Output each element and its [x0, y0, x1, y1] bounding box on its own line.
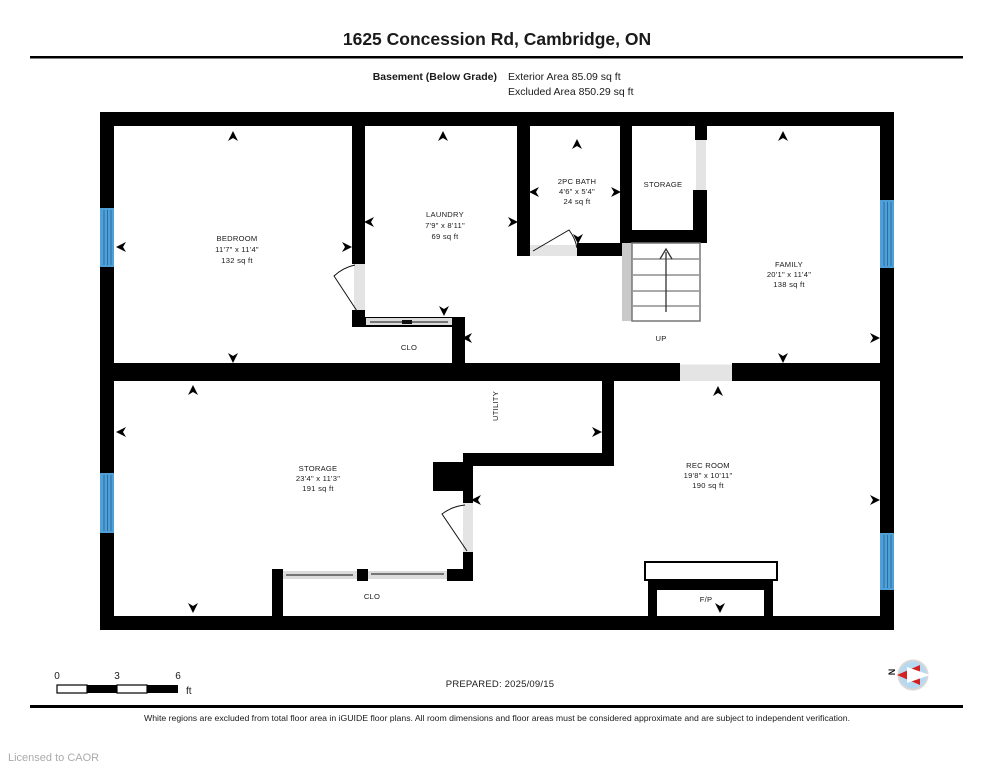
window: [880, 200, 894, 268]
window: [880, 533, 894, 590]
excluded-area-label: Excluded Area 850.29 sq ft: [508, 86, 634, 98]
room-dims-family: 20'1" x 11'4": [767, 270, 811, 279]
room-label-storage-bottom: STORAGE: [299, 464, 338, 473]
measurement-arrow: [364, 217, 374, 227]
footer-disclaimer: White regions are excluded from total fl…: [144, 713, 850, 723]
measurement-arrow: [188, 603, 198, 613]
measurement-arrow: [438, 131, 448, 141]
exterior-area-label: Exterior Area 85.09 sq ft: [508, 71, 621, 83]
measurement-arrow: [713, 386, 723, 396]
measurement-arrow: [778, 353, 788, 363]
license-label: Licensed to CAOR: [8, 752, 99, 764]
measurement-arrow: [611, 187, 621, 197]
closet-top-label: CLO: [401, 343, 417, 352]
wall: [452, 317, 465, 367]
wall: [463, 466, 473, 503]
measurement-arrow: [228, 131, 238, 141]
scale-segment: [117, 685, 147, 693]
window: [100, 208, 114, 267]
room-label-bath: 2PC BATH: [558, 177, 597, 186]
measurement-arrow: [778, 131, 788, 141]
floor-plan-canvas: 1625 Concession Rd, Cambridge, ON Baseme…: [0, 0, 995, 768]
room-label-laundry: LAUNDRY: [426, 210, 464, 219]
room-labels: BEDROOM 11'7" x 11'4" 132 sq ft LAUNDRY …: [215, 177, 811, 601]
measurement-arrow: [870, 495, 880, 505]
fireplace-label: F/P: [700, 595, 713, 604]
wall: [626, 230, 706, 243]
door-opening: [463, 503, 473, 552]
door-openings: [334, 140, 732, 552]
measurement-arrow: [870, 333, 880, 343]
wall: [100, 112, 894, 126]
fireplace: F/P: [645, 562, 777, 616]
wall: [357, 569, 368, 581]
floor-label: Basement (Below Grade): [373, 71, 497, 83]
fireplace-hearth: [645, 562, 777, 580]
measurement-arrow: [439, 306, 449, 316]
stair-landing-strip: [622, 243, 632, 321]
wall: [100, 616, 894, 630]
north-label: N: [887, 669, 897, 676]
scale-unit: ft: [186, 686, 192, 697]
scale-segment: [147, 685, 178, 693]
room-area-bath: 24 sq ft: [564, 197, 592, 206]
measurement-arrow: [228, 353, 238, 363]
measurement-arrow: [188, 385, 198, 395]
door-opening: [696, 140, 706, 190]
measurement-arrow: [592, 427, 602, 437]
stairs-up-label: UP: [655, 334, 666, 343]
room-dims-storage-bottom: 23'4" x 11'3": [296, 474, 340, 483]
room-dims-bedroom: 11'7" x 11'4": [215, 245, 259, 254]
scale-bar: 0 3 6 ft: [54, 671, 192, 697]
wall: [447, 569, 473, 581]
wall: [100, 363, 680, 381]
scale-tick-3: 3: [114, 671, 120, 682]
prepared-date: PREPARED: 2025/09/15: [446, 679, 554, 690]
wall: [517, 126, 530, 256]
room-area-family: 138 sq ft: [773, 280, 805, 289]
north-compass: N: [887, 661, 930, 690]
measurement-arrow: [572, 139, 582, 149]
room-label-storage-top: STORAGE: [644, 180, 683, 189]
utility-label: UTILITY: [491, 391, 500, 421]
door-swing: [334, 265, 357, 311]
scale-tick-6: 6: [175, 671, 181, 682]
scale-segment: [87, 685, 117, 693]
room-area-storage-bottom: 191 sq ft: [302, 484, 334, 493]
staircase: [622, 243, 700, 321]
door-opening: [354, 264, 365, 310]
room-label-bedroom: BEDROOM: [217, 234, 258, 243]
closet-doors: [283, 318, 452, 579]
wall: [695, 126, 707, 140]
room-dims-bath: 4'6" x 5'4": [559, 187, 595, 196]
scale-segment: [57, 685, 87, 693]
page-title: 1625 Concession Rd, Cambridge, ON: [343, 29, 651, 49]
closet-bottom-label: CLO: [364, 592, 380, 601]
wall: [272, 569, 283, 616]
header-divider: [30, 56, 963, 59]
footer-divider: [30, 705, 963, 708]
measurement-arrow: [116, 242, 126, 252]
room-area-bedroom: 132 sq ft: [221, 256, 253, 265]
room-dims-rec-room: 19'8" x 10'11": [684, 471, 733, 480]
measurement-arrow: [529, 187, 539, 197]
wall: [602, 381, 614, 458]
scale-tick-0: 0: [54, 671, 60, 682]
room-dims-laundry: 7'9" x 8'11": [425, 221, 465, 230]
wall: [463, 453, 614, 466]
room-label-rec-room: REC ROOM: [686, 461, 730, 470]
wall: [620, 126, 632, 243]
measurement-arrow: [508, 217, 518, 227]
wall: [352, 126, 365, 264]
sliding-door-handle: [402, 320, 412, 324]
measurement-arrow: [116, 427, 126, 437]
wall: [732, 363, 894, 381]
room-label-family: FAMILY: [775, 260, 803, 269]
sliding-door-track: [368, 571, 447, 579]
measurement-arrow: [342, 242, 352, 252]
window: [100, 473, 114, 533]
room-area-laundry: 69 sq ft: [432, 232, 460, 241]
walls: [100, 112, 894, 630]
door-opening: [530, 245, 577, 256]
room-area-rec-room: 190 sq ft: [692, 481, 724, 490]
support-post: [433, 462, 463, 491]
wall-opening: [680, 365, 732, 382]
